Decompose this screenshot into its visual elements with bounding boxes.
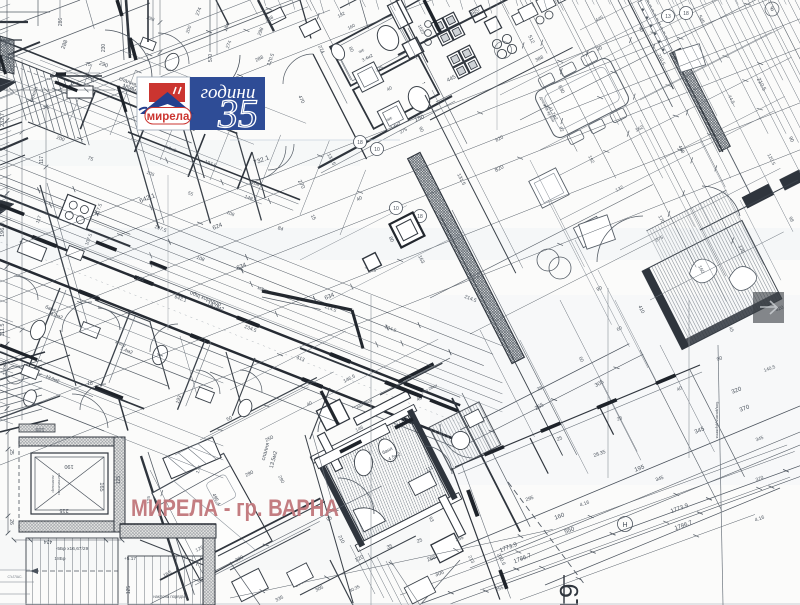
svg-text:190: 190 [64,463,73,469]
svg-text:19: 19 [554,584,584,605]
svg-text:286: 286 [58,18,64,27]
svg-text:35: 35 [217,91,258,136]
svg-text:асансьор: асансьор [51,475,56,493]
svg-text:мирела: мирела [147,111,190,123]
svg-text:424: 424 [44,538,53,544]
svg-text:232.7: 232.7 [0,113,6,127]
svg-text:боядисана дървена: боядисана дървена [715,402,720,440]
svg-text:наклона порядъп: наклона порядъп [153,594,187,599]
svg-text:25: 25 [90,77,95,83]
svg-text:570: 570 [208,54,214,63]
svg-text:МИРЕЛА - гр. ВАРНА: МИРЕЛА - гр. ВАРНА [131,495,339,522]
svg-text:10: 10 [393,206,399,212]
svg-text:СЪГЛАС.: СЪГЛАС. [8,575,23,579]
svg-text:10: 10 [374,147,380,153]
svg-text:пътнически: пътнически [57,473,62,494]
svg-text:109: 109 [35,426,44,432]
svg-text:230: 230 [101,44,107,53]
svg-text:196.6: 196.6 [0,223,6,237]
svg-text:165: 165 [98,482,104,491]
svg-text:13: 13 [665,14,671,20]
svg-text:-5Бр х16,67/29: -5Бр х16,67/29 [56,546,89,552]
svg-text:18: 18 [417,214,423,220]
svg-text:75: 75 [85,62,91,68]
svg-text:26: 26 [8,519,14,525]
svg-text:125: 125 [116,476,122,485]
svg-text:125: 125 [126,586,132,595]
svg-text:18: 18 [683,11,689,17]
svg-text:H: H [622,522,627,529]
svg-text:18Бр: 18Бр [54,556,65,562]
svg-text:117: 117 [39,156,45,164]
svg-text:25: 25 [8,449,14,455]
svg-text:215: 215 [59,507,68,513]
svg-text:18: 18 [357,140,363,146]
